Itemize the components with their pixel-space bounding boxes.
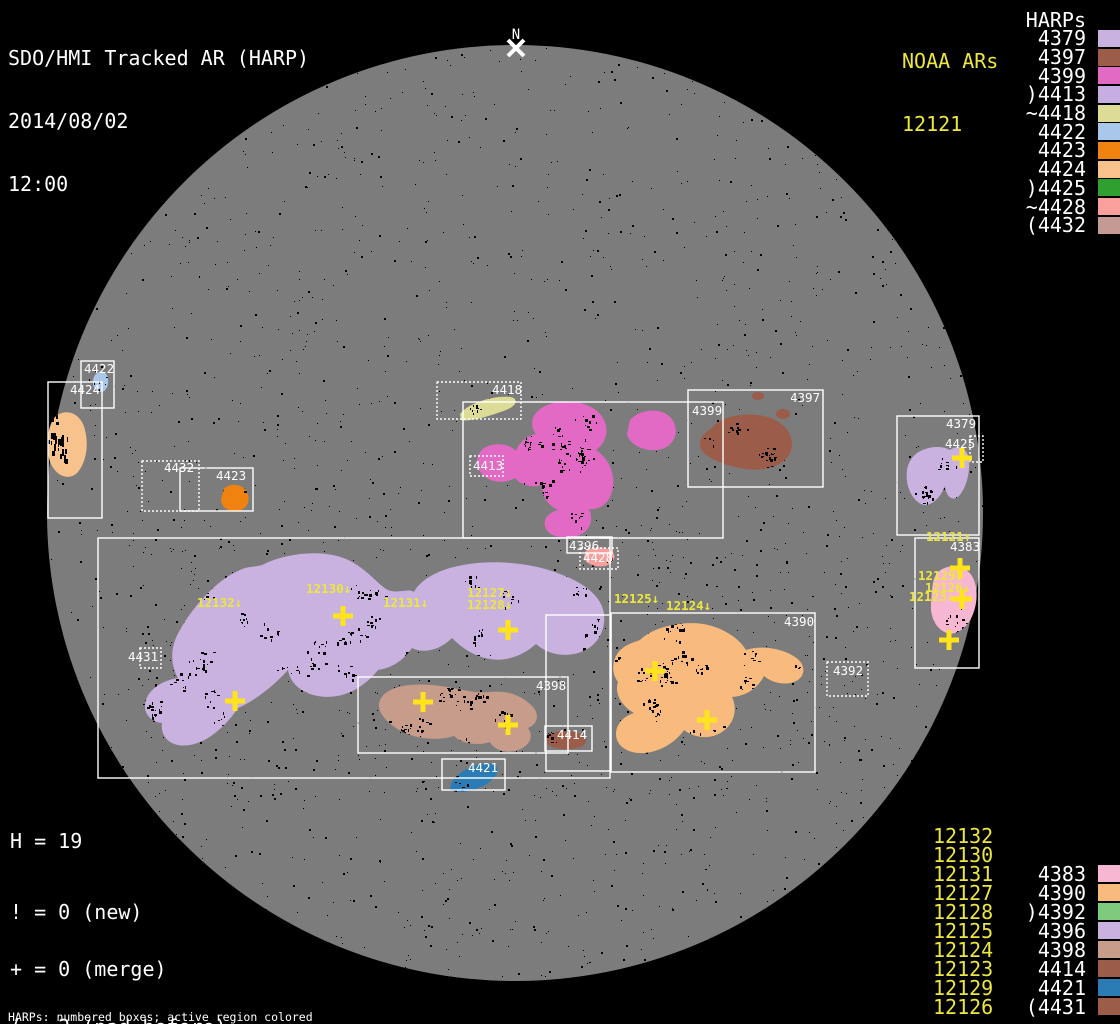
harp-color-swatch <box>1098 941 1120 958</box>
noaa-ars-heading: NOAA ARs <box>902 51 998 72</box>
noaa-ar-label-12130: 12130↓ <box>306 581 351 596</box>
date-label: 2014/08/02 <box>8 111 309 132</box>
harps-note: HARPs: numbered boxes; active region col… <box>8 1011 410 1024</box>
noaa-list-bottom: 1213212130121311212712128121251212412123… <box>933 827 993 1017</box>
app-title: SDO/HMI Tracked AR (HARP) <box>8 48 309 69</box>
harp-box-label-4399: 4399 <box>692 403 722 418</box>
harp-box-label-4421: 4421 <box>468 760 498 775</box>
harp-number-label: (4432 <box>1000 213 1086 237</box>
title-block: SDO/HMI Tracked AR (HARP) 2014/08/02 12:… <box>8 6 309 237</box>
harp-color-swatch <box>1098 884 1120 901</box>
harp-overview-screen: 4422442444324423441843994397441343794425… <box>0 0 1120 1024</box>
harp-box-label-4428: 4428 <box>583 550 613 565</box>
harp-box-label-4413: 4413 <box>473 458 503 473</box>
harp-color-swatch <box>1098 960 1120 977</box>
harp-list-bottom: 43834390)43924396439844144421(4431 <box>1000 864 1120 1016</box>
legend-line-merge: + = 0 (merge) <box>10 960 239 979</box>
harp-bottom-row: (4431 <box>1000 997 1120 1016</box>
harp-color-swatch <box>1098 161 1120 178</box>
harp-color-swatch <box>1098 105 1120 122</box>
north-indicator-label: N <box>512 27 520 43</box>
harp-box-label-4418: 4418 <box>492 382 522 397</box>
harp-color-swatch <box>1098 49 1120 66</box>
harp-color-swatch <box>1098 142 1120 159</box>
harp-box-label-4423: 4423 <box>216 468 246 483</box>
harp-box-label-4424: 4424 <box>70 382 100 397</box>
noaa-current-number: 12121 <box>902 114 998 135</box>
harp-color-swatch <box>1098 217 1120 234</box>
noaa-ar-label-12132: 12132↓ <box>197 595 242 610</box>
harp-box-label-4414: 4414 <box>557 727 587 742</box>
harp-color-swatch <box>1098 123 1120 140</box>
harp-color-swatch <box>1098 86 1120 103</box>
harp-box-label-4432: 4432 <box>164 460 194 475</box>
time-label: 12:00 <box>8 174 309 195</box>
harp-box-label-4431: 4431 <box>128 649 158 664</box>
harp-color-swatch <box>1098 67 1120 84</box>
noaa-ar-label-12131: 12131↓ <box>383 595 428 610</box>
harp-box-label-4390: 4390 <box>784 614 814 629</box>
harp-list-top: 437943974399)4413~4418442244234424)4425~… <box>1000 29 1120 235</box>
noaa-ar-label-12124: 12124↓ <box>666 598 711 613</box>
harp-box-label-4392: 4392 <box>833 663 863 678</box>
harp-color-swatch <box>1098 998 1120 1015</box>
harp-box-label-4398: 4398 <box>536 678 566 693</box>
harp-box-label-4379: 4379 <box>946 416 976 431</box>
harp-color-swatch <box>1098 865 1120 882</box>
footnotes: HARPs: numbered boxes; active region col… <box>8 986 410 1024</box>
harp-box-label-4397: 4397 <box>790 390 820 405</box>
harp-box-label-4422: 4422 <box>84 361 114 376</box>
noaa-ars-block: NOAA ARs 12121 <box>902 9 998 177</box>
harp-color-swatch <box>1098 979 1120 996</box>
harp-color-swatch <box>1098 179 1120 196</box>
legend-line-new: ! = 0 (new) <box>10 903 239 922</box>
harp-number-label: (4431 <box>1000 995 1086 1019</box>
harp-color-swatch <box>1098 30 1120 47</box>
noaa-ar-label-12128: 12128↓ <box>467 597 512 612</box>
harp-color-swatch <box>1098 922 1120 939</box>
noaa-ar-label-12123: 12123↓ <box>909 589 954 604</box>
noaa-ar-label-12125: 12125↓ <box>614 591 659 606</box>
noaa-number-label: 12126 <box>933 998 993 1017</box>
h-count-label: H = 19 <box>10 829 82 853</box>
harp-color-swatch <box>1098 198 1120 215</box>
noaa-ar-label-12121: 12121↑ <box>926 529 971 544</box>
harp-top-row: (4432 <box>1000 216 1120 235</box>
harp-color-swatch <box>1098 903 1120 920</box>
